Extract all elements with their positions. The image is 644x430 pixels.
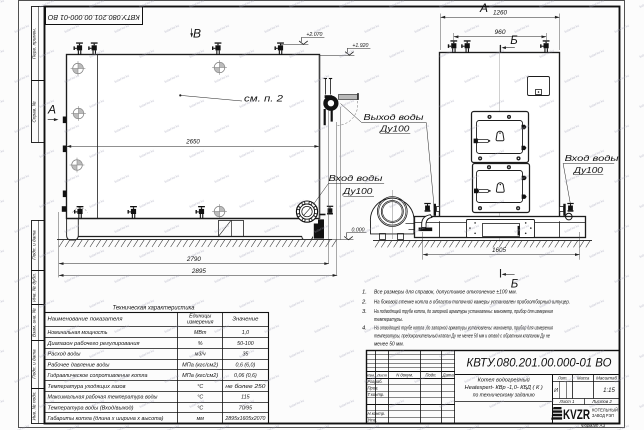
svg-text:Ду100: Ду100	[342, 186, 372, 196]
svg-text:Выход воды: Выход воды	[364, 112, 425, 122]
svg-text:МПа (кгс/см2): МПа (кгс/см2)	[182, 362, 218, 368]
svg-text:2650: 2650	[185, 138, 200, 145]
svg-text:1,0: 1,0	[242, 330, 249, 336]
svg-text:Наименование показателя: Наименование показателя	[48, 317, 123, 323]
svg-text:Значение: Значение	[232, 317, 258, 323]
svg-text:KVZR: KVZR	[563, 407, 590, 422]
svg-text:+1.920: +1.920	[352, 43, 368, 49]
svg-text:3.: 3.	[362, 309, 367, 315]
svg-text:А: А	[479, 1, 488, 15]
svg-text:температуры, предохранительный: температуры, предохранительный клапан Ду…	[374, 333, 550, 340]
svg-text:Б: Б	[510, 35, 518, 47]
svg-text:Ду100: Ду100	[379, 123, 409, 133]
svg-text:КОТЕЛЬНЫЙ: КОТЕЛЬНЫЙ	[592, 408, 618, 413]
svg-text:И: И	[554, 388, 558, 394]
svg-text:не более 250: не более 250	[225, 384, 265, 390]
svg-text:Габариты котла (длина х ширина: Габариты котла (длина х ширина х высота)	[48, 416, 164, 422]
svg-text:менее 50 мм.: менее 50 мм.	[374, 342, 404, 348]
svg-text:1260: 1260	[493, 9, 507, 16]
svg-text:1:15: 1:15	[603, 388, 615, 394]
svg-text:Перв. примен.: Перв. примен.	[32, 28, 37, 59]
svg-text:В: В	[193, 26, 201, 40]
svg-text:Подп. и дата: Подп. и дата	[32, 349, 37, 379]
svg-text:Дата: Дата	[442, 373, 455, 378]
svg-text:На подводящей трубе котла,: На подводящей трубе котла, до запорной а…	[374, 308, 553, 315]
svg-text:960: 960	[495, 29, 507, 36]
svg-text:Пров.: Пров.	[368, 385, 379, 390]
svg-text:Номинальная мощность: Номинальная мощность	[48, 330, 108, 336]
svg-text:50-100: 50-100	[237, 341, 254, 347]
svg-text:Техническая характеристика: Техническая характеристика	[113, 305, 195, 312]
svg-text:по техническому заданию: по техническому заданию	[473, 393, 535, 399]
svg-text:температуры.: температуры.	[374, 317, 403, 323]
svg-text:МВт: МВт	[194, 330, 207, 336]
svg-text:МПа (кгс/см2): МПа (кгс/см2)	[182, 373, 218, 379]
svg-text:0,06 (0,6): 0,06 (0,6)	[234, 373, 257, 379]
svg-text:Гидравлическое сопротивление к: Гидравлическое сопротивление котла	[48, 373, 148, 379]
svg-text:%: %	[198, 341, 203, 347]
svg-text:Справ. №: Справ. №	[32, 101, 37, 122]
svg-text:Все размеры для справок, допус: Все размеры для справок, допустимое откл…	[374, 290, 517, 296]
svg-text:Температура уходящих газов: Температура уходящих газов	[48, 384, 126, 390]
svg-text:Рабочее давление воды: Рабочее давление воды	[48, 362, 110, 368]
svg-text:ЗАВОД РЭП: ЗАВОД РЭП	[592, 413, 614, 418]
svg-text:Лист 1: Лист 1	[559, 399, 576, 404]
svg-text:0.000: 0.000	[352, 228, 365, 234]
svg-text:Т.контр.: Т.контр.	[368, 392, 385, 397]
svg-text:1.: 1.	[362, 290, 367, 296]
svg-text:2.: 2.	[361, 299, 367, 305]
svg-text:Heatexpert- КВр -1,0- КБД ( К: Heatexpert- КВр -1,0- КБД ( К )	[465, 385, 543, 391]
svg-text:Диапазон рабочего регулировани: Диапазон рабочего регулирования	[46, 341, 139, 347]
svg-text:Н.контр.: Н.контр.	[368, 411, 386, 416]
svg-text:Формат А3: Формат А3	[581, 423, 606, 428]
svg-text:Взам. инв. №: Взам. инв. №	[32, 308, 37, 337]
svg-text:Инв. № дубл.: Инв. № дубл.	[32, 273, 37, 302]
svg-text:Утв.: Утв.	[368, 418, 378, 423]
svg-text:0,6 (6,0): 0,6 (6,0)	[236, 362, 256, 368]
svg-text:мм: мм	[197, 416, 205, 422]
svg-text:измерения: измерения	[187, 320, 214, 326]
svg-text:2895: 2895	[191, 268, 206, 275]
svg-text:Инв. № подл.: Инв. № подл.	[32, 391, 37, 420]
svg-text:°С: °С	[197, 405, 203, 411]
svg-text:КВТУ.080.201.00.000-01 ВО: КВТУ.080.201.00.000-01 ВО	[48, 13, 140, 22]
svg-text:°С: °С	[197, 384, 203, 390]
svg-text:Подп. и дата: Подп. и дата	[32, 230, 37, 260]
svg-text:2895х1605х2070: 2895х1605х2070	[224, 416, 265, 422]
svg-text:N докум.: N докум.	[396, 373, 413, 378]
